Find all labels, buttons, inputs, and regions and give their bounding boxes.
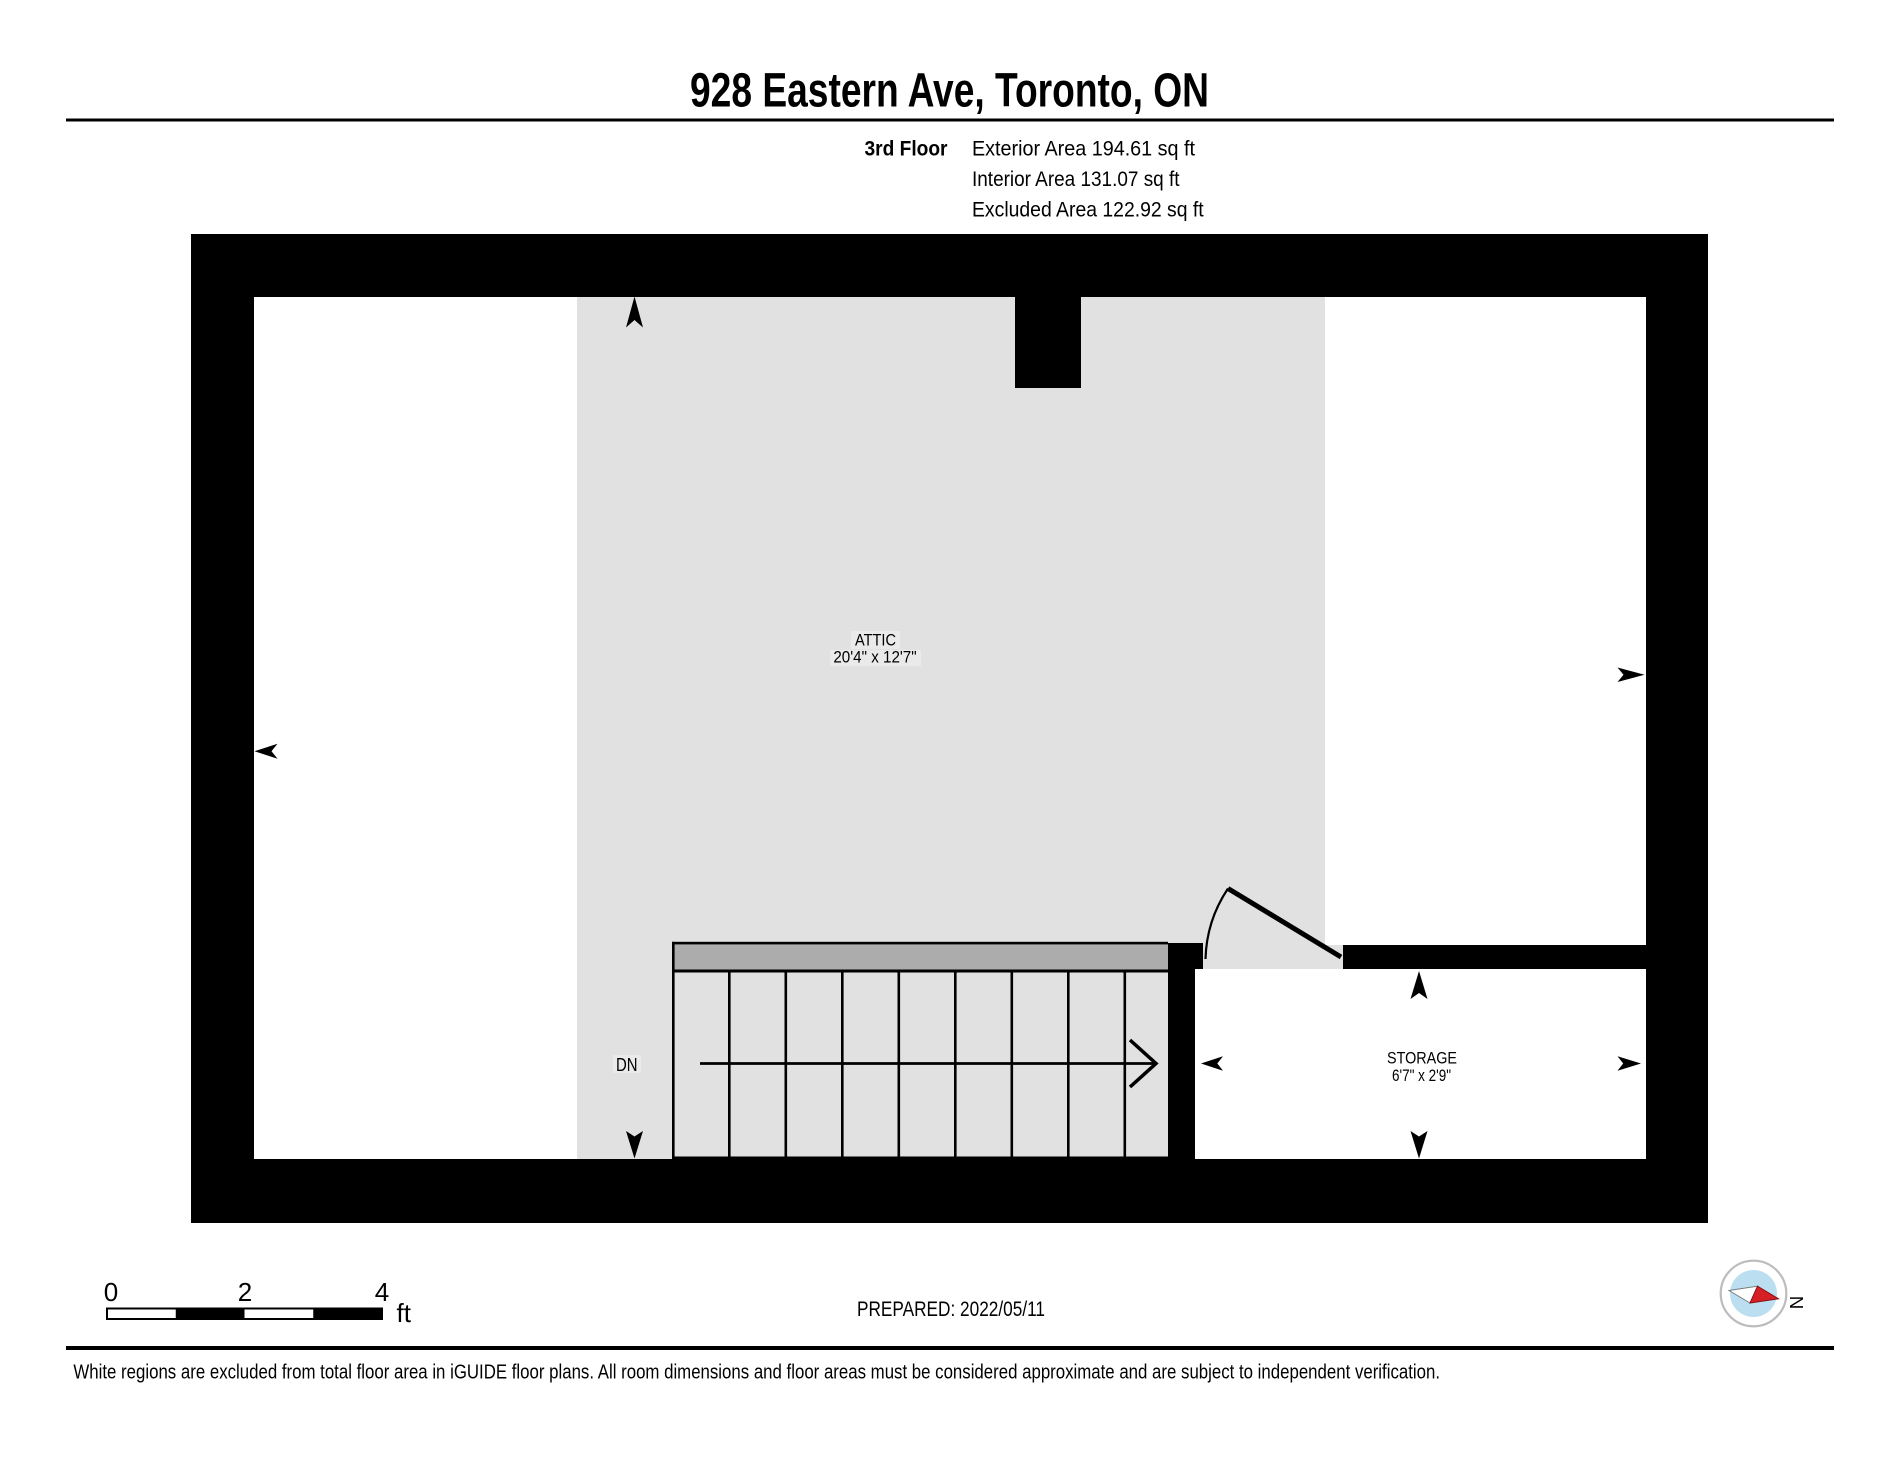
- svg-text:White regions are excluded fro: White regions are excluded from total fl…: [73, 1361, 1440, 1384]
- svg-text:6'7" x 2'9": 6'7" x 2'9": [1392, 1066, 1451, 1085]
- svg-text:Interior Area 131.07 sq ft: Interior Area 131.07 sq ft: [972, 168, 1180, 191]
- svg-text:928 Eastern Ave, Toronto, ON: 928 Eastern Ave, Toronto, ON: [690, 65, 1209, 118]
- svg-text:Exterior Area 194.61 sq ft: Exterior Area 194.61 sq ft: [972, 137, 1195, 160]
- svg-text:N: N: [1786, 1296, 1807, 1309]
- svg-text:0: 0: [104, 1277, 118, 1307]
- svg-text:2: 2: [238, 1277, 252, 1307]
- svg-text:20'4" x 12'7": 20'4" x 12'7": [833, 648, 916, 667]
- svg-text:ft: ft: [397, 1298, 412, 1328]
- svg-text:PREPARED: 2022/05/11: PREPARED: 2022/05/11: [857, 1297, 1045, 1321]
- svg-text:3rd Floor: 3rd Floor: [865, 137, 948, 160]
- svg-text:Excluded Area 122.92 sq ft: Excluded Area 122.92 sq ft: [972, 198, 1204, 221]
- svg-text:STORAGE: STORAGE: [1387, 1049, 1457, 1068]
- svg-text:4: 4: [375, 1277, 389, 1307]
- svg-text:DN: DN: [616, 1055, 638, 1075]
